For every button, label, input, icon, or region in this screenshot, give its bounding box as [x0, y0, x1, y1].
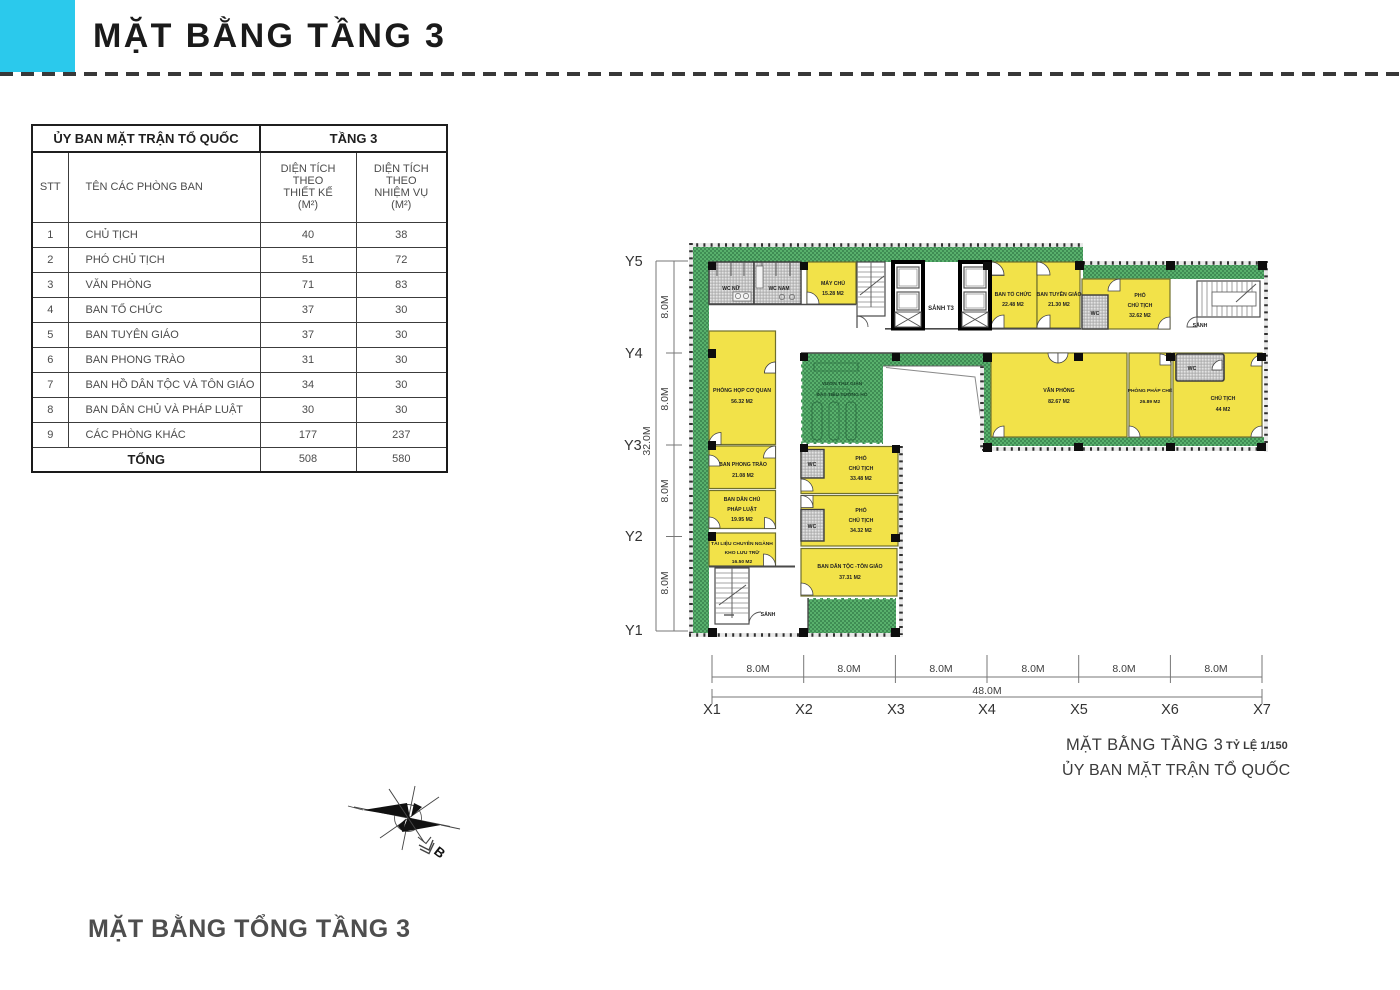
svg-text:8.0M: 8.0M — [1204, 663, 1227, 675]
svg-text:CHỦ TỊCH: CHỦ TỊCH — [1128, 302, 1153, 309]
svg-text:8.0M: 8.0M — [659, 479, 671, 502]
svg-text:22.48 M2: 22.48 M2 — [1002, 302, 1024, 308]
svg-text:21.30 M2: 21.30 M2 — [1048, 302, 1070, 308]
svg-text:32.62 M2: 32.62 M2 — [1129, 313, 1151, 319]
svg-text:BAN TUYÊN GIÁO: BAN TUYÊN GIÁO — [1037, 290, 1082, 298]
svg-text:26.89 M2: 26.89 M2 — [1140, 399, 1161, 405]
svg-text:PHÓ: PHÓ — [855, 454, 866, 462]
svg-text:CHỦ TỊCH: CHỦ TỊCH — [849, 517, 874, 524]
svg-text:PHÁP LUẬT: PHÁP LUẬT — [727, 506, 757, 513]
svg-text:SẢNH T3: SẢNH T3 — [928, 305, 954, 312]
svg-text:SẢNH: SẢNH — [1193, 322, 1208, 329]
svg-text:15.28 M2: 15.28 M2 — [822, 291, 844, 297]
svg-text:WC: WC — [808, 462, 817, 468]
svg-text:X1: X1 — [703, 702, 721, 718]
svg-text:BAN DÂN CHỦ: BAN DÂN CHỦ — [724, 496, 761, 503]
svg-text:Y3: Y3 — [624, 438, 642, 454]
svg-text:34.32 M2: 34.32 M2 — [850, 528, 872, 534]
svg-text:21.08 M2: 21.08 M2 — [732, 473, 754, 479]
svg-text:X6: X6 — [1161, 702, 1179, 718]
svg-text:ỦY BAN MẶT TRẬN TỔ QUỐC: ỦY BAN MẶT TRẬN TỔ QUỐC — [1062, 759, 1290, 779]
svg-text:Y1: Y1 — [625, 623, 643, 639]
svg-text:8.0M: 8.0M — [659, 387, 671, 410]
svg-text:8.0M: 8.0M — [1021, 663, 1044, 675]
svg-text:X5: X5 — [1070, 702, 1088, 718]
svg-text:WC: WC — [1091, 311, 1100, 317]
svg-text:MẶT BẰNG TẦNG 3: MẶT BẰNG TẦNG 3 — [1066, 735, 1223, 754]
svg-text:PHÓ: PHÓ — [855, 506, 866, 514]
svg-text:SẢNH: SẢNH — [761, 611, 776, 618]
svg-text:16.50 M2: 16.50 M2 — [732, 559, 753, 565]
svg-text:48.0M: 48.0M — [972, 685, 1001, 697]
svg-text:BAN DÂN TỘC -TÔN GIÁO: BAN DÂN TỘC -TÔN GIÁO — [817, 562, 882, 570]
svg-text:44 M2: 44 M2 — [1216, 407, 1231, 413]
svg-text:19.95 M2: 19.95 M2 — [731, 517, 753, 523]
svg-text:82.67 M2: 82.67 M2 — [1048, 399, 1070, 405]
svg-text:X2: X2 — [795, 702, 813, 718]
svg-text:8.0M: 8.0M — [837, 663, 860, 675]
svg-text:WC NỮ: WC NỮ — [722, 285, 740, 292]
svg-text:BAN PHONG TRÀO: BAN PHONG TRÀO — [719, 461, 767, 468]
svg-text:8.0M: 8.0M — [659, 295, 671, 318]
svg-text:VĂN PHÒNG: VĂN PHÒNG — [1043, 386, 1074, 394]
svg-text:Y2: Y2 — [625, 529, 643, 545]
svg-text:WC NAM: WC NAM — [768, 286, 789, 292]
svg-text:33.48 M2: 33.48 M2 — [850, 476, 872, 482]
svg-text:CHỦ TỊCH: CHỦ TỊCH — [1211, 395, 1236, 402]
svg-text:TỶ LỆ 1/150: TỶ LỆ 1/150 — [1226, 739, 1288, 752]
svg-text:BAN TỔ CHỨC: BAN TỔ CHỨC — [995, 291, 1032, 298]
svg-text:8.0M: 8.0M — [746, 663, 769, 675]
svg-text:8.0M: 8.0M — [929, 663, 952, 675]
svg-text:8.0M: 8.0M — [1112, 663, 1135, 675]
svg-text:X4: X4 — [978, 702, 996, 718]
svg-text:CHỦ TỊCH: CHỦ TỊCH — [849, 465, 874, 472]
svg-text:X7: X7 — [1253, 702, 1271, 718]
svg-text:X3: X3 — [887, 702, 905, 718]
svg-text:37.31 M2: 37.31 M2 — [839, 575, 861, 581]
svg-text:PHÓ: PHÓ — [1134, 291, 1145, 299]
svg-text:56.32 M2: 56.32 M2 — [731, 399, 753, 405]
svg-text:8.0M: 8.0M — [659, 571, 671, 594]
svg-text:B: B — [431, 844, 448, 862]
svg-text:ĐẶT TIỂU TƯỢNG HỒ: ĐẶT TIỂU TƯỢNG HỒ — [816, 391, 867, 398]
svg-text:PHÒNG HỌP CƠ QUAN: PHÒNG HỌP CƠ QUAN — [713, 386, 771, 394]
svg-text:WC: WC — [1188, 366, 1197, 372]
svg-text:MÁY CHỦ: MÁY CHỦ — [821, 280, 845, 287]
svg-text:Y4: Y4 — [625, 346, 643, 362]
svg-text:KHO LƯU TRỮ: KHO LƯU TRỮ — [725, 549, 761, 556]
svg-text:32.0M: 32.0M — [641, 426, 653, 455]
svg-text:Y5: Y5 — [625, 254, 643, 270]
svg-text:WC: WC — [808, 524, 817, 530]
